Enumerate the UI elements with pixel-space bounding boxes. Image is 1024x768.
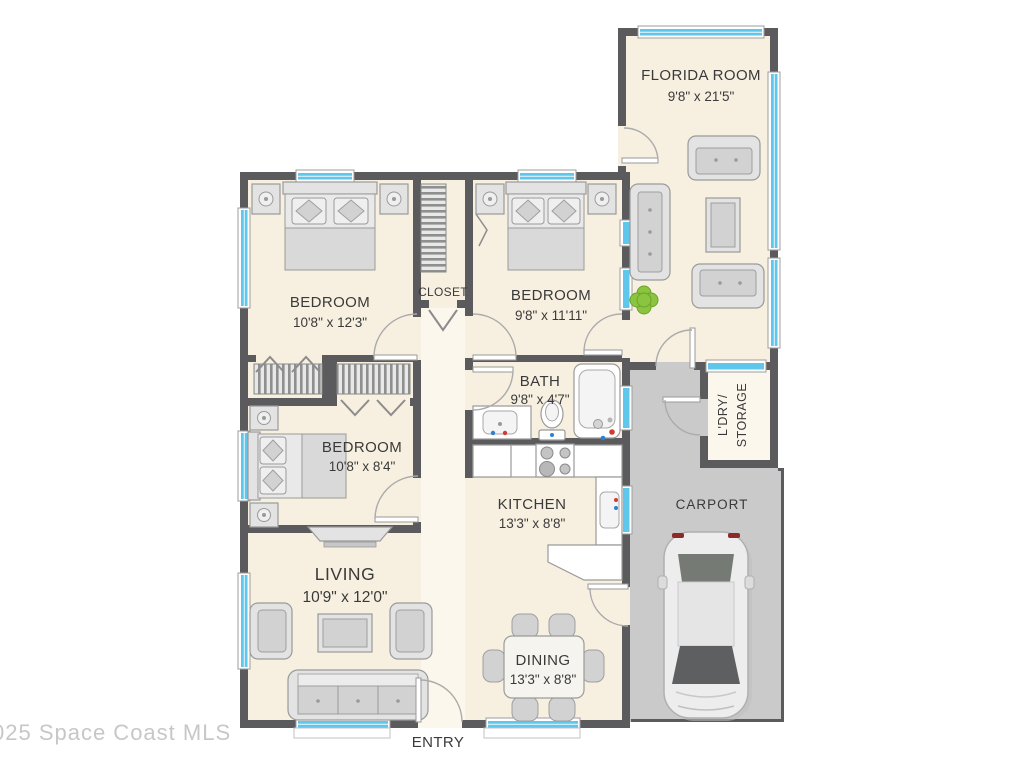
entry-door	[416, 678, 421, 722]
bedroom1-door	[374, 355, 417, 360]
bedroom3-label: BEDROOM	[322, 439, 402, 456]
florida-room-label: FLORIDA ROOM	[641, 67, 761, 84]
window-florida-right-2	[768, 258, 780, 348]
bedroom1-dims: 10'8" x 12'3"	[293, 315, 367, 330]
window-living-left	[238, 573, 250, 669]
car-icon	[658, 532, 754, 721]
bedroom2-florida-door	[584, 350, 622, 355]
bath-door	[473, 367, 513, 372]
dining-chair	[512, 697, 538, 721]
window-bedroom1-top	[296, 170, 354, 182]
bedroom3-closet-rod	[337, 364, 410, 394]
tv-console	[308, 527, 392, 541]
window-florida-right-1	[768, 72, 780, 250]
florida-entry-door	[622, 158, 658, 163]
bedroom3-door	[375, 517, 418, 522]
window-bath-right	[620, 386, 632, 430]
tv-icon	[324, 542, 376, 547]
bedroom2-door	[473, 355, 516, 360]
dining-dims: 13'3" x 8'8"	[510, 672, 577, 687]
bedroom1-closet-rod	[254, 364, 322, 394]
dining-chair	[483, 650, 505, 682]
porch-step	[484, 728, 580, 738]
bath-dims: 9'8" x 4'7"	[510, 392, 569, 407]
dining-chair	[582, 650, 604, 682]
carport-label: CARPORT	[676, 497, 749, 512]
kitchen-sink-icon	[600, 492, 619, 528]
kitchen-dims: 13'3" x 8'8"	[499, 516, 566, 531]
dining-chair	[512, 614, 538, 638]
laundry-label-line2: STORAGE	[735, 383, 749, 447]
hall-closet-rod	[421, 184, 446, 272]
dining-chair	[549, 614, 575, 638]
closet-label: CLOSET	[418, 285, 468, 299]
living-dims: 10'9" x 12'0"	[302, 589, 387, 606]
floor-plan-drawing: FLORIDA ROOM 9'8" x 21'5" BEDROOM 10'8" …	[0, 0, 1024, 768]
bedroom1-label: BEDROOM	[290, 294, 370, 311]
bedroom3-dims: 10'8" x 8'4"	[329, 459, 396, 474]
florida-walkway-door	[690, 328, 695, 368]
mls-watermark: 025 Space Coast MLS	[0, 720, 231, 745]
porch-step	[294, 728, 390, 738]
fridge-icon	[473, 445, 511, 477]
dining-label: DINING	[516, 652, 571, 669]
window-florida-top	[638, 26, 764, 38]
dining-carport-door	[588, 584, 628, 589]
bedroom2-label: BEDROOM	[511, 287, 591, 304]
laundry-label-line1: L'DRY/	[716, 394, 730, 436]
floor-plan-page: FLORIDA ROOM 9'8" x 21'5" BEDROOM 10'8" …	[0, 0, 1024, 768]
entry-label: ENTRY	[412, 734, 465, 751]
laundry-door	[663, 397, 700, 402]
dining-chair	[549, 697, 575, 721]
window-bedroom2-top	[518, 170, 576, 182]
window-laundry-top	[706, 360, 766, 372]
bedroom2-dims: 9'8" x 11'11"	[515, 308, 587, 323]
bath-label: BATH	[520, 373, 561, 390]
florida-room-dims: 9'8" x 21'5"	[668, 89, 735, 104]
window-bedroom1-left	[238, 208, 250, 308]
living-label: LIVING	[315, 564, 375, 584]
kitchen-label: KITCHEN	[498, 496, 567, 513]
